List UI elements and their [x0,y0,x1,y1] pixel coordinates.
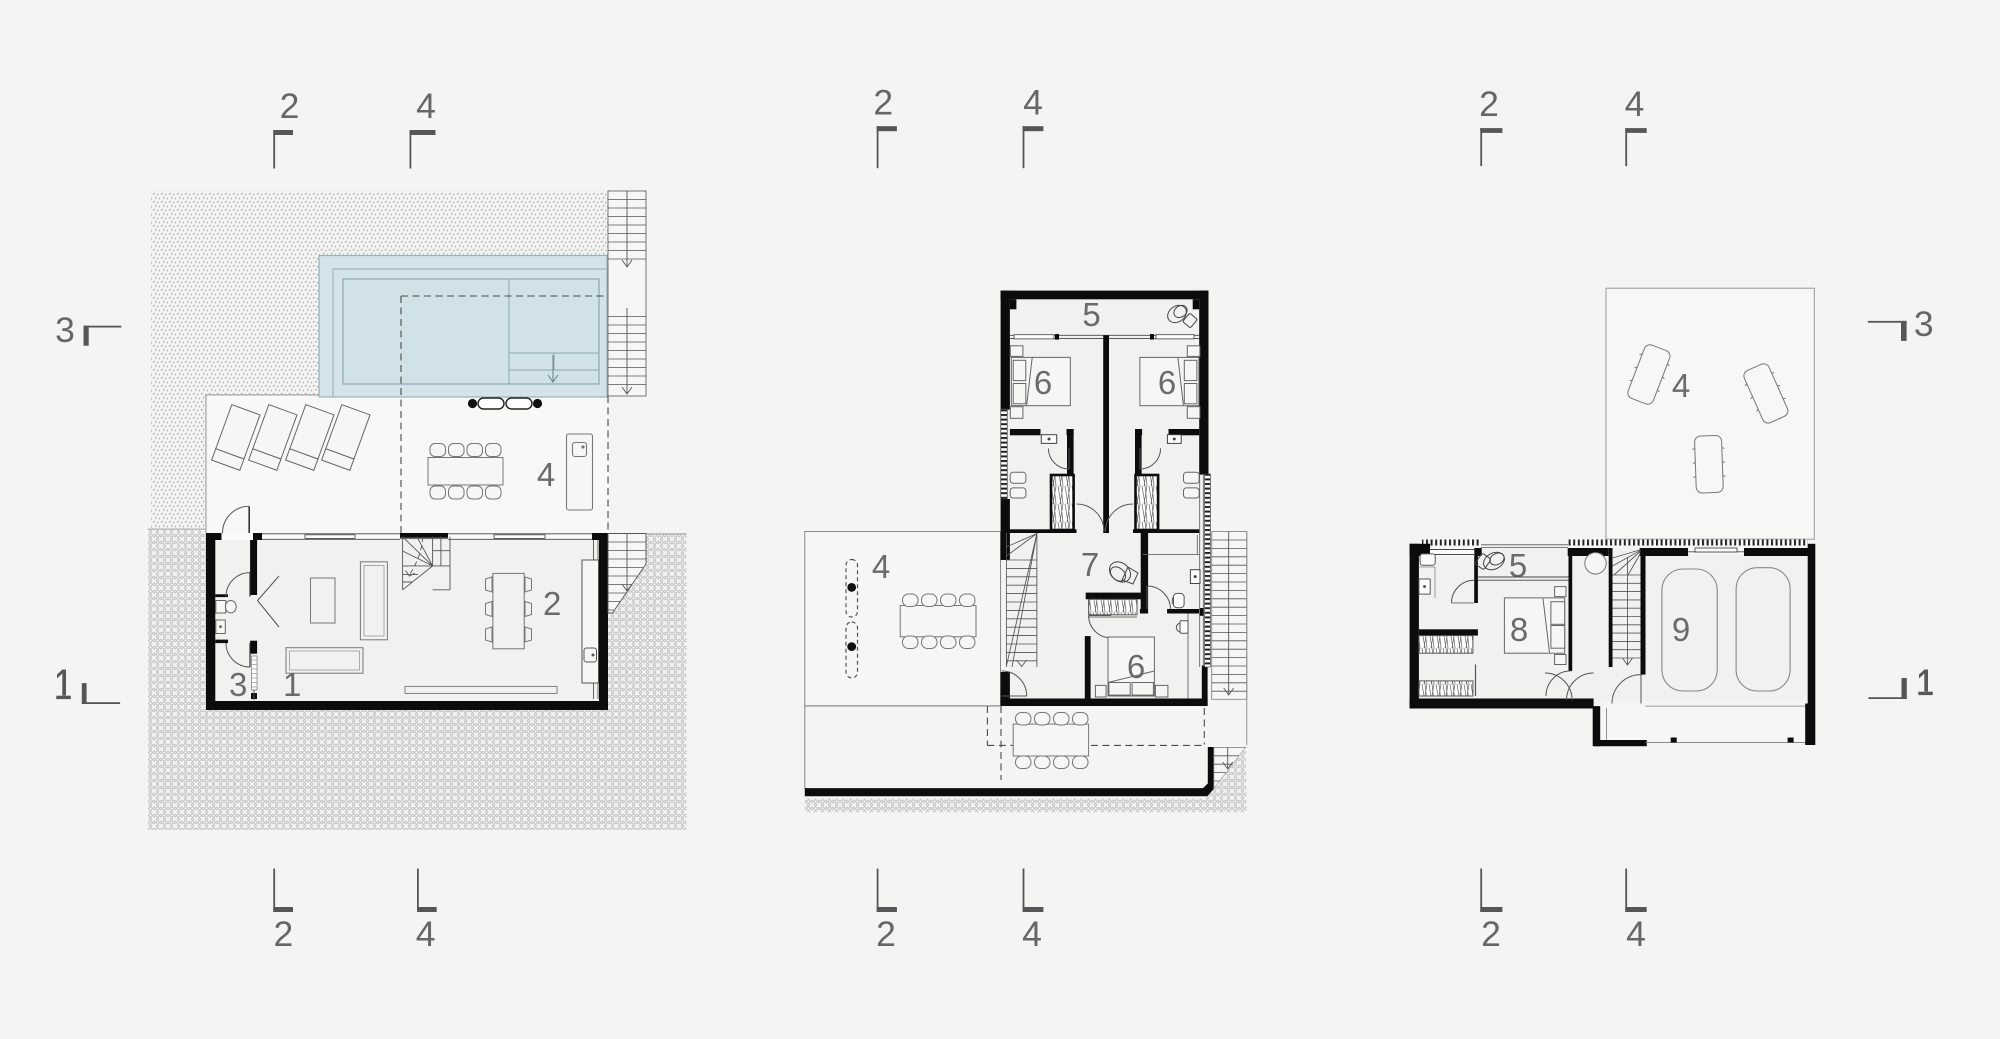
svg-text:4: 4 [416,86,436,126]
svg-text:9: 9 [1672,611,1690,648]
svg-text:4: 4 [1625,84,1645,124]
svg-text:4: 4 [416,914,436,954]
svg-text:8: 8 [1510,611,1528,648]
svg-text:6: 6 [1034,364,1052,401]
svg-text:2: 2 [1479,84,1499,124]
svg-text:7: 7 [1081,546,1099,583]
svg-text:3: 3 [229,666,247,703]
svg-text:4: 4 [1672,367,1690,404]
svg-text:1: 1 [283,666,301,703]
svg-text:4: 4 [1023,83,1043,123]
svg-text:2: 2 [274,914,294,954]
svg-text:2: 2 [543,585,561,622]
svg-text:5: 5 [1082,296,1100,333]
svg-text:2: 2 [876,914,896,954]
svg-text:4: 4 [872,548,890,585]
svg-text:2: 2 [873,83,893,123]
svg-text:3: 3 [1914,304,1934,344]
svg-text:2: 2 [280,86,300,126]
svg-text:3: 3 [55,310,75,350]
svg-text:6: 6 [1127,648,1145,685]
svg-text:5: 5 [1509,547,1527,584]
svg-text:2: 2 [1481,914,1501,954]
svg-text:6: 6 [1158,364,1176,401]
svg-text:4: 4 [1626,914,1646,954]
svg-text:4: 4 [537,456,555,493]
svg-text:4: 4 [1022,914,1042,954]
